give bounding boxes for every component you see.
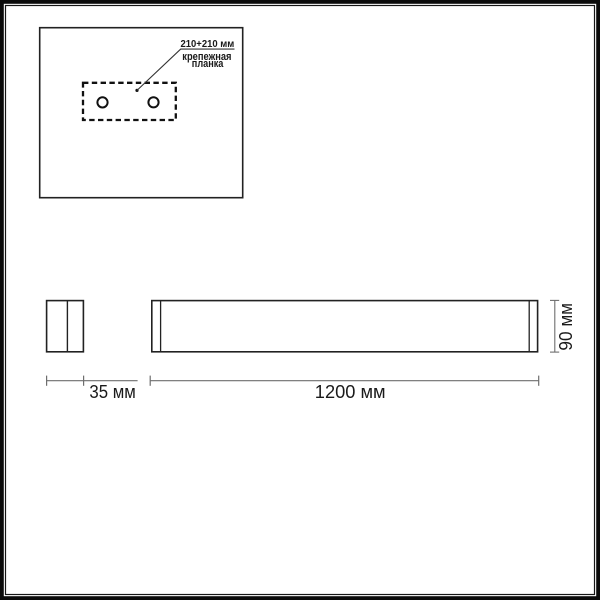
svg-text:90 мм: 90 мм bbox=[555, 303, 576, 351]
svg-text:1200 мм: 1200 мм bbox=[315, 381, 386, 402]
svg-text:210+210 мм: 210+210 мм bbox=[181, 39, 235, 50]
svg-text:планка: планка bbox=[192, 58, 224, 70]
svg-text:35 мм: 35 мм bbox=[89, 381, 135, 402]
